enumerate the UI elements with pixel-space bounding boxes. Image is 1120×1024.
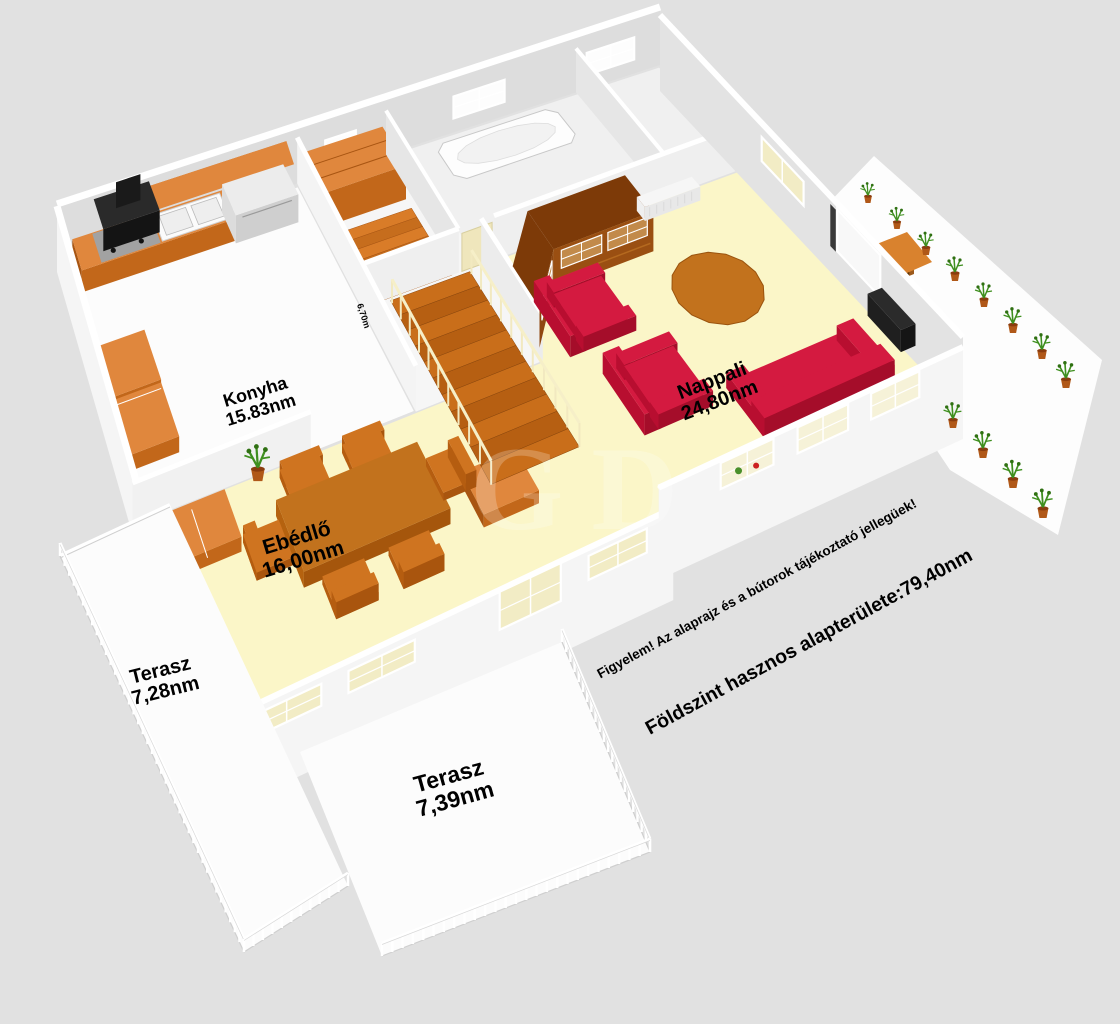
floorplan-page: Konyha 15.83nm Nappali 24,80nm Ebédlő 16… xyxy=(0,0,1120,1024)
watermark: GD xyxy=(470,420,706,558)
